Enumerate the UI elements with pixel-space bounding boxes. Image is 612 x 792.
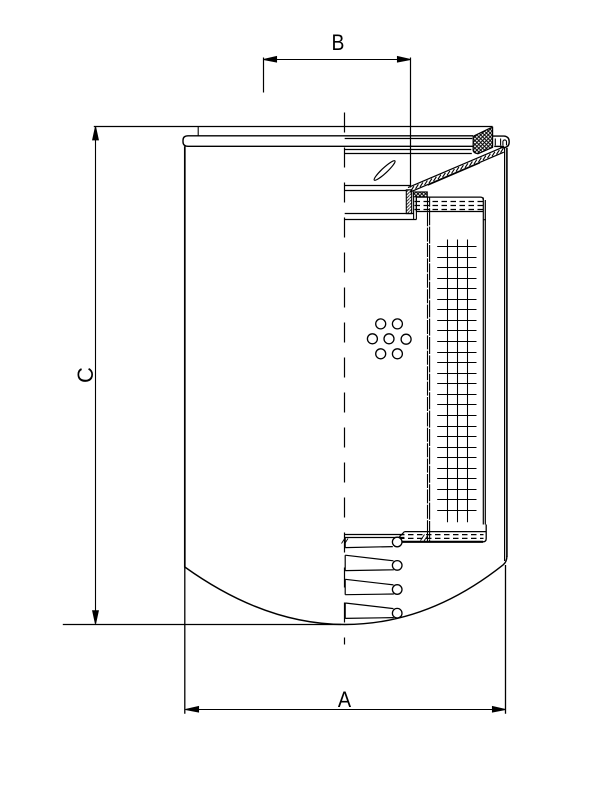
svg-text:B: B bbox=[332, 31, 345, 55]
svg-text:A: A bbox=[338, 688, 351, 712]
svg-text:C: C bbox=[73, 367, 98, 383]
